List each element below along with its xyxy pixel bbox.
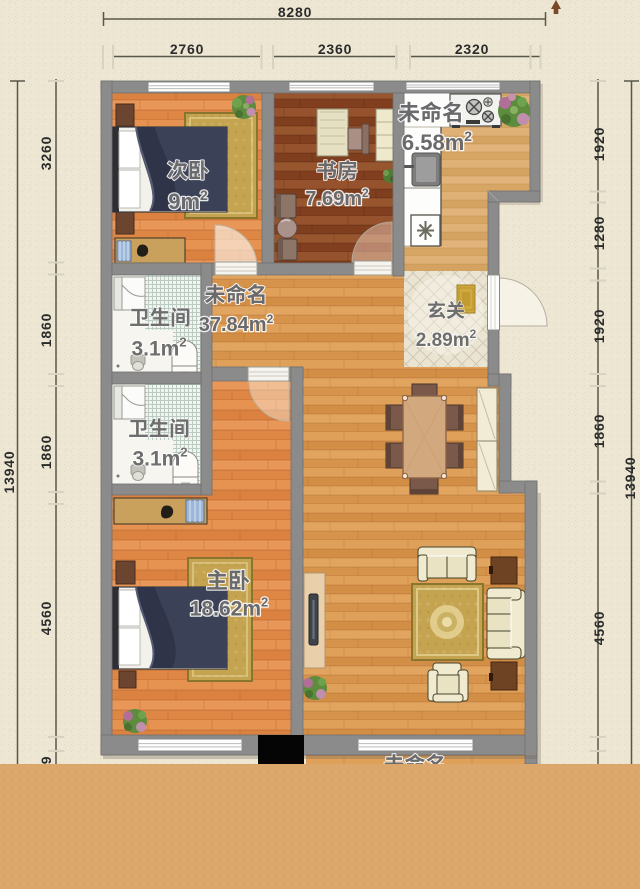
svg-text:1860: 1860 xyxy=(591,414,607,448)
svg-text:6.58m2: 6.58m2 xyxy=(402,128,472,155)
svg-text:1920: 1920 xyxy=(591,127,607,161)
svg-text:9: 9 xyxy=(38,756,54,765)
svg-text:1920: 1920 xyxy=(591,309,607,343)
svg-text:18.62m2: 18.62m2 xyxy=(190,595,268,621)
svg-text:3260: 3260 xyxy=(38,136,54,170)
svg-text:4560: 4560 xyxy=(591,611,607,645)
svg-text:2760: 2760 xyxy=(170,41,204,57)
svg-text:1280: 1280 xyxy=(591,216,607,250)
svg-text:8280: 8280 xyxy=(278,4,312,20)
svg-text:3.1m2: 3.1m2 xyxy=(132,445,187,471)
svg-text:2320: 2320 xyxy=(455,41,489,57)
svg-text:4560: 4560 xyxy=(38,601,54,635)
svg-text:1860: 1860 xyxy=(38,435,54,469)
svg-text:13940: 13940 xyxy=(1,451,17,494)
svg-text:37.84m2: 37.84m2 xyxy=(199,312,274,336)
svg-text:13940: 13940 xyxy=(622,457,638,500)
svg-text:7.69m2: 7.69m2 xyxy=(305,186,369,210)
svg-text:2360: 2360 xyxy=(318,41,352,57)
svg-text:1860: 1860 xyxy=(38,313,54,347)
svg-text:3.1m2: 3.1m2 xyxy=(131,335,186,361)
svg-text:2.89m2: 2.89m2 xyxy=(416,327,477,351)
